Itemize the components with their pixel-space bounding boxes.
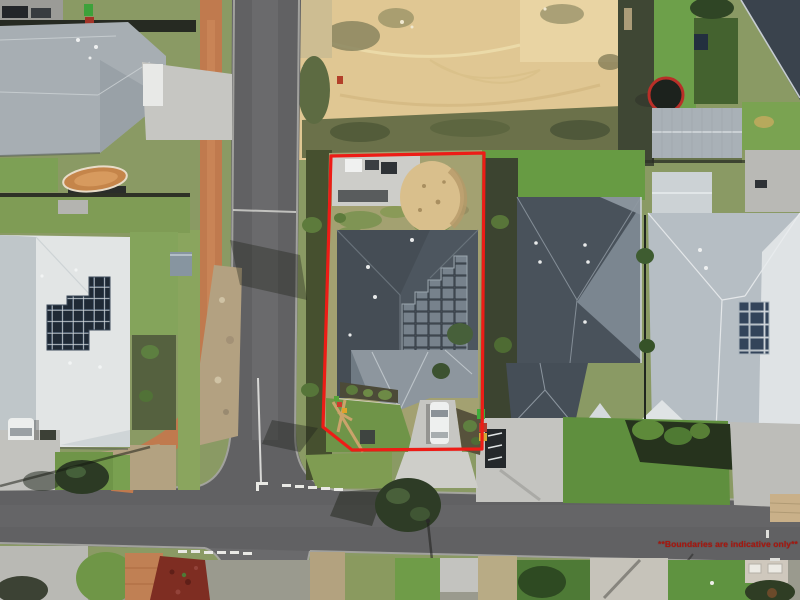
orange-marker [337, 76, 343, 84]
shed-grey-large [652, 108, 742, 158]
garage-door [143, 64, 163, 106]
tree-by-house [447, 323, 473, 345]
work-van [345, 159, 362, 172]
green-wheelie-bin [84, 4, 93, 16]
boundary-disclaimer-text: **Boundaries are indicative only** [652, 538, 800, 552]
subject-lot [324, 150, 487, 488]
aerial-photo: **Boundaries are indicative only** [0, 0, 800, 600]
trampoline [649, 78, 683, 112]
tree-shade-strip [618, 0, 654, 166]
parked-car [2, 6, 28, 18]
tree [636, 248, 654, 264]
aerial-photo-canvas [0, 0, 800, 600]
street-tree-2 [375, 478, 441, 532]
vacant-sand-lot [298, 0, 654, 166]
solar-array-b [739, 302, 769, 354]
